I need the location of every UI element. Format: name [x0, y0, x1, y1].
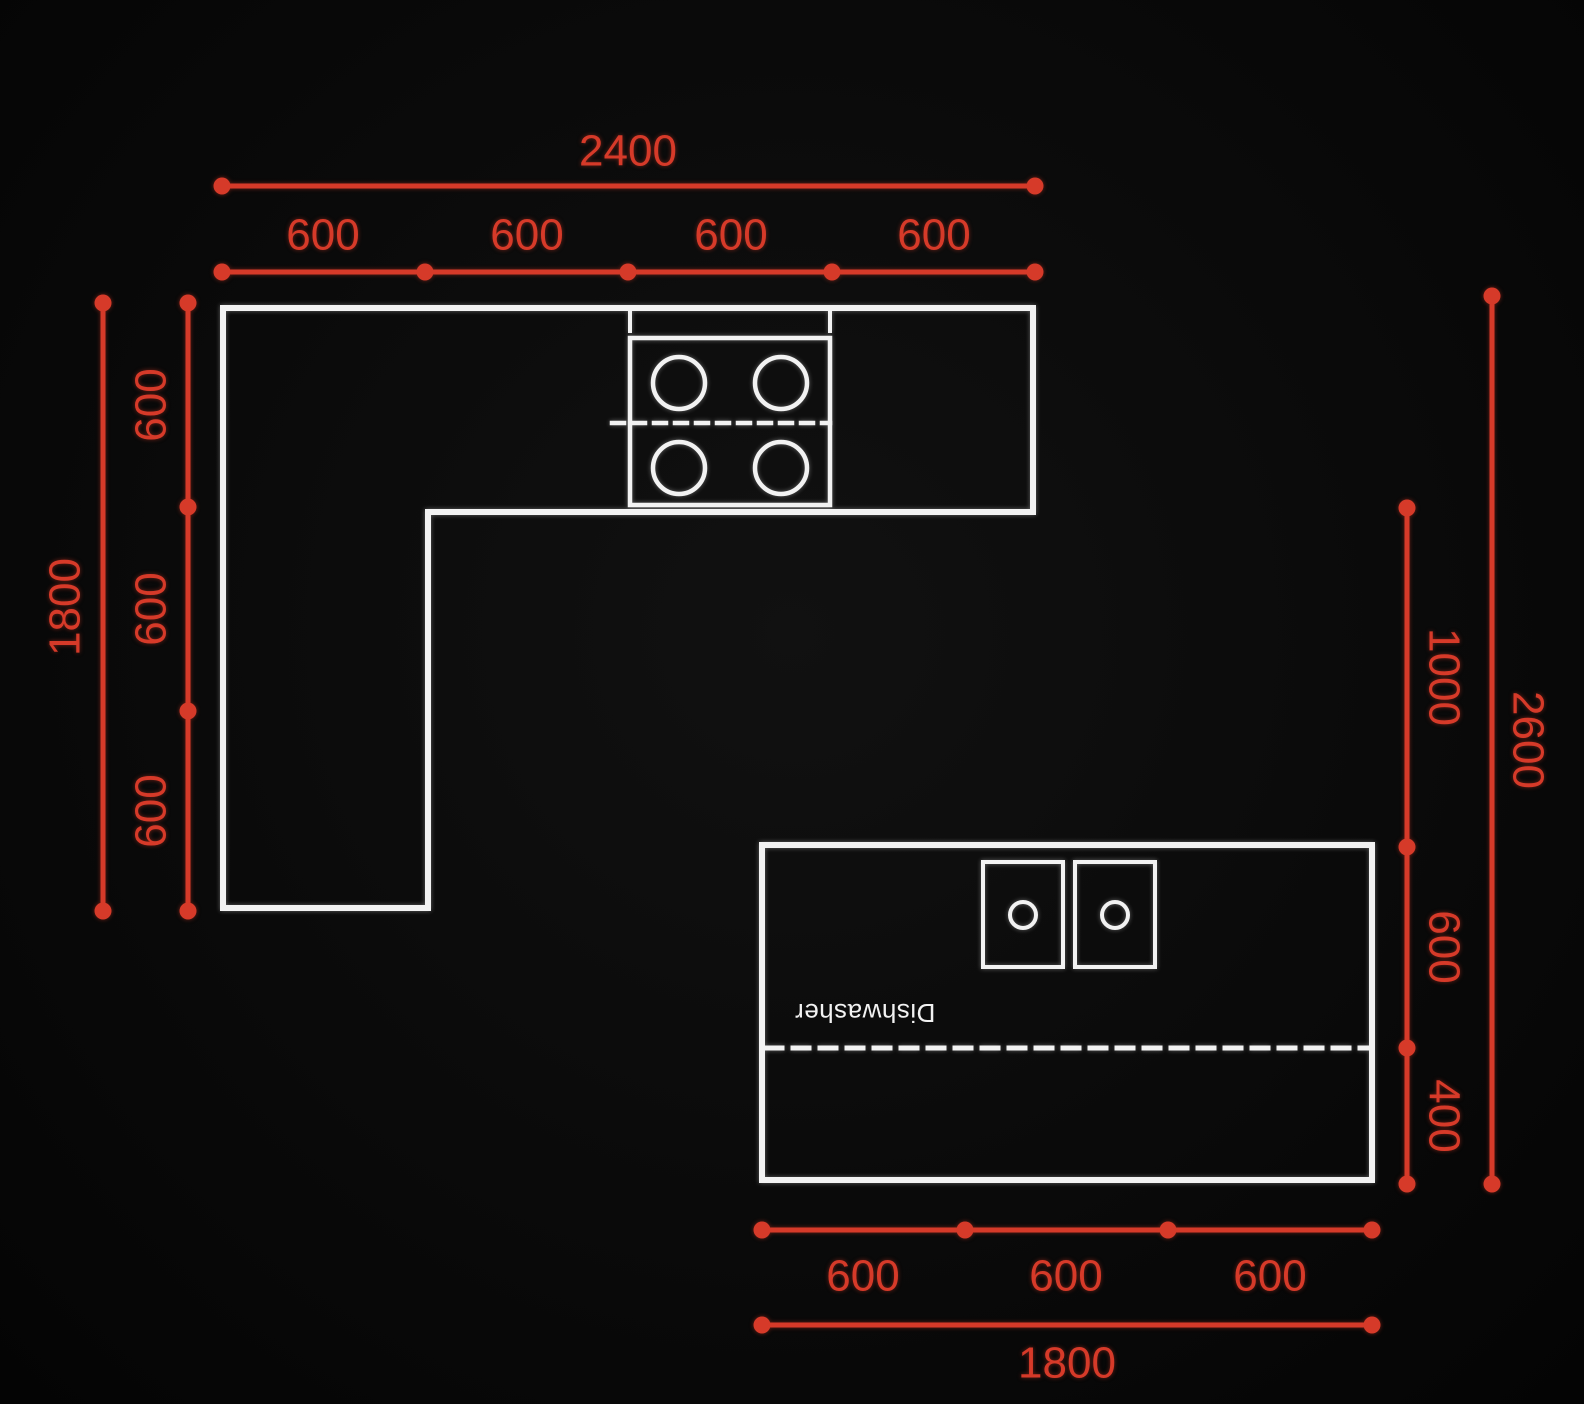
dim-dot [180, 903, 197, 920]
dim-left-segment-label: 600 [126, 774, 175, 847]
dimension-dots [95, 178, 1501, 1334]
dim-top-segment-label: 600 [490, 210, 563, 259]
dim-dot [1484, 288, 1501, 305]
dim-right-segment-label: 400 [1420, 1079, 1469, 1152]
dim-dot [957, 1222, 974, 1239]
dim-dot [95, 295, 112, 312]
dim-left-segment-label: 600 [126, 368, 175, 441]
dim-dot [1364, 1317, 1381, 1334]
dim-bottom-segment-label: 600 [826, 1251, 899, 1300]
dim-dot [620, 264, 637, 281]
dim-dot [1399, 1040, 1416, 1057]
dim-dot [214, 264, 231, 281]
dim-left-total-label: 1800 [40, 558, 89, 656]
dim-right-segment-label: 600 [1420, 910, 1469, 983]
dim-right-total-label: 2600 [1504, 691, 1553, 789]
dim-dot [824, 264, 841, 281]
dim-bottom-segment-label: 600 [1233, 1251, 1306, 1300]
dim-dot [214, 178, 231, 195]
plan-geometry [223, 308, 1372, 1180]
dim-right-segment-label: 1000 [1420, 628, 1469, 726]
dim-dot [1027, 264, 1044, 281]
dim-bottom-total-label: 1800 [1018, 1338, 1116, 1387]
floor-plan-canvas: Dishwasher [0, 0, 1584, 1404]
sink-basin-left [983, 862, 1063, 967]
dim-dot [95, 903, 112, 920]
dimension-labels: 2400 600 600 600 600 1800 600 600 600 10… [40, 126, 1552, 1387]
dishwasher-label: Dishwasher [795, 998, 936, 1028]
dim-dot [754, 1222, 771, 1239]
dim-top-segment-label: 600 [897, 210, 970, 259]
dim-dot [1027, 178, 1044, 195]
dim-dot [1399, 839, 1416, 856]
burner-top-left [653, 357, 705, 409]
dim-top-segment-label: 600 [694, 210, 767, 259]
dim-dot [417, 264, 434, 281]
sink-drain-right [1102, 902, 1128, 928]
dimension-lines [103, 186, 1492, 1325]
dim-dot [1160, 1222, 1177, 1239]
dim-top-segment-label: 600 [286, 210, 359, 259]
burner-bottom-left [653, 442, 705, 494]
burner-bottom-right [755, 442, 807, 494]
dim-dot [180, 703, 197, 720]
dim-dot [754, 1317, 771, 1334]
dim-dot [1484, 1176, 1501, 1193]
sink-basin-right [1075, 862, 1155, 967]
kitchen-floor-plan: Dishwasher [0, 0, 1584, 1404]
burner-top-right [755, 357, 807, 409]
dim-dot [1399, 500, 1416, 517]
dim-dot [1364, 1222, 1381, 1239]
dim-dot [180, 295, 197, 312]
dim-bottom-segment-label: 600 [1029, 1251, 1102, 1300]
dim-top-total-label: 2400 [579, 126, 677, 175]
dim-left-segment-label: 600 [126, 572, 175, 645]
dim-dot [180, 499, 197, 516]
dim-dot [1399, 1176, 1416, 1193]
sink-drain-left [1010, 902, 1036, 928]
dimension-layer: 2400 600 600 600 600 1800 600 600 600 10… [40, 126, 1552, 1387]
